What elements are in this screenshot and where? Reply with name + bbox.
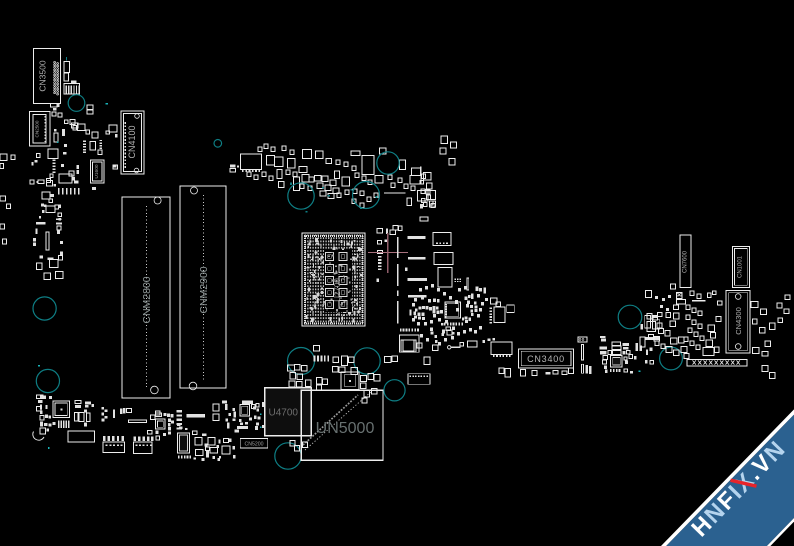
svg-text:CN2500: CN2500 [35,120,40,137]
svg-text:CN3400: CN3400 [527,354,565,364]
svg-text:U2700: U2700 [333,278,342,302]
svg-text:CNM2800: CNM2800 [141,276,153,323]
svg-text:U4700: U4700 [269,408,299,419]
svg-text:UN5000: UN5000 [316,420,375,437]
svg-text:CN5200: CN5200 [244,442,263,448]
svg-text:CNM2900: CNM2900 [198,266,210,313]
svg-text:CN4300: CN4300 [734,307,743,335]
svg-text:U1600: U1600 [94,164,100,178]
svg-text:CN3500: CN3500 [38,60,48,91]
svg-text:CN1001: CN1001 [738,255,744,278]
svg-text:CN7600: CN7600 [683,250,689,273]
svg-text:CN4100: CN4100 [127,125,137,158]
